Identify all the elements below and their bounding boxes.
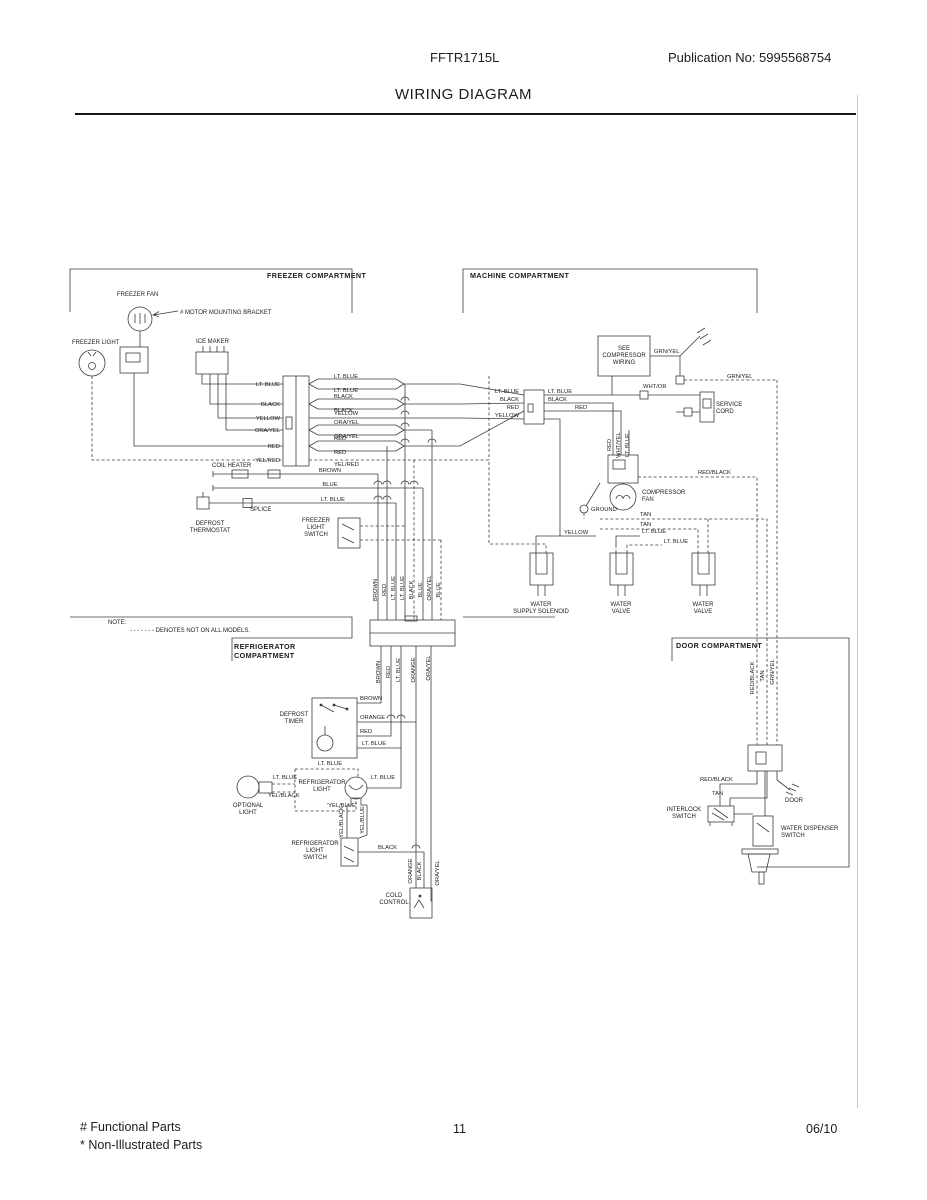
freezer-light-switch-symbol [338, 518, 441, 548]
coil-heater-circuit [197, 470, 423, 509]
door-ground-symbol [777, 771, 799, 795]
wire-label-orange: ORANGE [360, 715, 385, 721]
footer-date: 06/10 [806, 1122, 837, 1136]
wire-label-lt-blue: LT. BLUE [400, 576, 406, 600]
wire-label-red: RED [575, 405, 587, 411]
wire-label-lt-blue: LT. BLUE [664, 539, 688, 545]
fan-motor-box [120, 347, 148, 373]
wire-label-lt-blue: LT. BLUE [362, 741, 386, 747]
freezer-light-switch-label: LIGHT [307, 525, 325, 531]
freezer-light-switch-label: SWITCH [304, 532, 328, 538]
wire-label-black: BLACK [409, 580, 415, 599]
wire-label-red: RED [382, 584, 388, 596]
refrigerator-light-label: LIGHT [313, 787, 331, 793]
wire-label-tan: TAN [640, 512, 651, 518]
wire-label-black: BLACK [378, 845, 397, 851]
wire-label-brown: BROWN [319, 468, 341, 474]
interlock-switch-label: INTERLOCK [667, 807, 701, 813]
interlock-switch-symbol [708, 806, 734, 826]
section-dividers [70, 617, 849, 867]
wire-label-red: RED [507, 405, 519, 411]
wire-label-black: BLACK [500, 397, 519, 403]
wire-label-brown: BROWN [373, 579, 379, 601]
chassis-ground-symbol [650, 328, 711, 384]
wire-label-red-black: RED/BLACK [698, 470, 731, 476]
wire-label-black: BLACK [261, 402, 280, 408]
optional-light-label: LIGHT [239, 810, 257, 816]
water-valve-1-label: WATER [611, 602, 633, 608]
defrost-timer-box [312, 698, 357, 758]
water-valve-2-label: WATER [693, 602, 715, 608]
document-page: FFTR1715L Publication No: 5995568754 WIR… [0, 0, 927, 1200]
wire-label-black: BLACK [417, 861, 423, 880]
service-cord-label: CORD [716, 409, 734, 415]
optional-light-label: OPTIONAL [233, 803, 264, 809]
wire-label-ora-yel: ORA/YEL [435, 860, 441, 886]
wire-label-black: BLACK [548, 397, 567, 403]
footer-page-number: 11 [453, 1122, 466, 1136]
ice-maker-label: ICE MAKER [196, 339, 230, 345]
wire-label-ora-yel: ORA/YEL [426, 655, 432, 681]
wire-label-yellow: YELLOW [564, 530, 589, 536]
wire-label-blue: BLUE [418, 582, 424, 597]
wire-label-red-black: RED/BLACK [700, 777, 733, 783]
wire-label-brown: BROWN [360, 696, 382, 702]
door-compartment-label: DOOR COMPARTMENT [676, 641, 762, 650]
wire-label-ora-yel: ORA/YEL [255, 428, 281, 434]
freezer-light-symbol [79, 350, 105, 376]
wire-label-yellow: YELLOW [334, 411, 359, 417]
interlock-switch-label: SWITCH [672, 814, 696, 820]
wire-label-wht-or: WHT/OR [643, 384, 667, 390]
ice-maker-box [196, 346, 228, 374]
machine-compartment-section [463, 269, 777, 745]
water-supply-solenoid-plug [530, 553, 553, 596]
freezer-compartment-section [70, 269, 546, 620]
wire-label-lt-blue: LT. BLUE [256, 382, 280, 388]
wire-label-orange: ORANGE [408, 858, 414, 883]
wire-label-grn-yel: GRN/YEL [770, 659, 776, 685]
refrigerator-light-symbol [345, 777, 367, 799]
wire-label-lt-blue: LT. BLUE [642, 529, 666, 535]
wire-label-lt-blue: LT. BLUE [548, 389, 572, 395]
service-cord-symbol [640, 391, 714, 422]
refrigerator-light-switch-label: REFRIGERATOR [291, 841, 339, 847]
note-label-label: NOTE: [108, 620, 127, 626]
cold-control-box [410, 888, 432, 918]
connector-block-1 [283, 376, 309, 466]
service-cord-label: SERVICE [716, 402, 742, 408]
wire-label-tan: TAN [760, 670, 766, 681]
wire-label-yellow: YELLOW [495, 413, 520, 419]
freezer-fan-symbol [128, 307, 178, 347]
wire-label-red: RED [607, 439, 613, 451]
wire-label-lt-blue: LT. BLUE [625, 433, 631, 457]
water-valve-2-label: VALVE [694, 609, 712, 615]
connector-block-2 [524, 390, 544, 424]
connector-block-4 [748, 745, 782, 771]
wire-label-lt-blue: LT. BLUE [371, 775, 395, 781]
water-dispenser-switch-label: WATER DISPENSER [781, 826, 839, 832]
refrigerator-compartment-label: REFRIGERATOR [234, 642, 296, 651]
wire-label-ora-yel: ORA/YEL [427, 575, 433, 601]
wire-label-red: RED [334, 436, 346, 442]
refrigerator-compartment-label: COMPARTMENT [234, 651, 295, 660]
footer-non-illustrated-parts: * Non-Illustrated Parts [80, 1138, 202, 1152]
component-label-layer: FREEZER COMPARTMENTMACHINE COMPARTMENTRE… [72, 271, 839, 906]
compressor-fan-label: FAN [642, 497, 654, 503]
water-dispenser-switch-symbol [734, 814, 778, 884]
wiring-diagram: LT. BLUEBLACKYELLOWORA/YELREDYEL/REDLT. … [0, 0, 927, 1200]
defrost-timer-label: TIMER [285, 719, 304, 725]
defrost-thermostat-symbol [197, 497, 209, 509]
door-ground-label: DOOR [785, 798, 804, 804]
door-compartment-section [708, 745, 799, 884]
defrost-thermostat-label: THERMOSTAT [190, 528, 231, 534]
freezer-fan-label: FREEZER FAN [117, 292, 158, 298]
refrigerator-light-switch-symbol [341, 838, 358, 866]
water-supply-solenoid-label: WATER [531, 602, 553, 608]
refrigerator-light-switch-label: LIGHT [306, 848, 324, 854]
compressor-fan-label: COMPRESSOR [642, 490, 686, 496]
wire-label-yellow: YELLOW [256, 416, 281, 422]
wire-label-grn-yel: GRN/YEL [727, 374, 753, 380]
wire-label-yel-black: YEL/BLACK [268, 793, 300, 799]
wire-label-tan: TAN [712, 791, 723, 797]
compressor-relay-box [608, 455, 638, 483]
compressor-wiring-box-label: SEE [618, 346, 630, 352]
water-valve-1-plug [610, 553, 633, 596]
compressor-wiring-box-label: COMPRESSOR [602, 353, 646, 359]
wire-label-red: RED [386, 666, 392, 678]
refrigerator-light-switch-label: SWITCH [303, 855, 327, 861]
wire-label-ground: GROUND [591, 507, 617, 513]
compressor-fan-symbol [610, 483, 636, 510]
freezer-compartment-label: FREEZER COMPARTMENT [267, 271, 367, 280]
defrost-timer-label: DEFROST [280, 712, 309, 718]
refrigerator-crossovers [387, 715, 420, 849]
wire-label-lt-blue: LT. BLUE [334, 374, 358, 380]
motor-mounting-bracket-label: # MOTOR MOUNTING BRACKET [180, 310, 272, 316]
wire-label-lt-blue: LT. BLUE [396, 658, 402, 682]
wire-label-brown: BROWN [376, 661, 382, 683]
water-supply-solenoid-label: SUPPLY SOLENOID [513, 609, 569, 615]
wire-label-red: RED [334, 450, 346, 456]
wire-label-orange: ORANGE [411, 657, 417, 682]
water-valve-2-plug [692, 553, 715, 596]
wire-label-blue: BLUE [322, 482, 337, 488]
wire-label-blue: BLUE [436, 582, 442, 597]
footer-functional-parts: # Functional Parts [80, 1120, 181, 1134]
freezer-light-label: FREEZER LIGHT [72, 340, 120, 346]
wire-label-yel-blue: YEL/BLUE [360, 806, 366, 834]
wire-label-wht-yel: WHT/YEL [616, 431, 622, 458]
splice-label: SPLICE [250, 507, 271, 513]
machine-compartment-label: MACHINE COMPARTMENT [470, 271, 570, 280]
black-wire-to-cold-control [358, 852, 424, 888]
wire-label-lt-blue: LT. BLUE [321, 497, 345, 503]
water-valve-1-label: VALVE [612, 609, 630, 615]
wire-label-ora-yel: ORA/YEL [334, 420, 360, 426]
refrigerator-light-label: REFRIGERATOR [298, 780, 346, 786]
wire-label-lt-blue: LT. BLUE [495, 389, 519, 395]
wire-label-lt-blue: LT. BLUE [273, 775, 297, 781]
compressor-wiring-box-label: WIRING [613, 360, 636, 366]
water-dispenser-switch-label: SWITCH [781, 833, 805, 839]
connector-block-3 [370, 616, 455, 646]
defrost-thermostat-label: DEFROST [196, 521, 225, 527]
cold-control-label: COLD [386, 893, 403, 899]
wire-label-tan: TAN [640, 522, 651, 528]
wire-label-lt-blue: LT. BLUE [318, 761, 342, 767]
wire-label-black: BLACK [334, 394, 353, 400]
wire-label-red-black: RED/BLACK [750, 661, 756, 694]
wire-label-red: RED [360, 729, 372, 735]
valve-dashed-wires [616, 545, 662, 553]
optional-light-symbol [237, 776, 272, 798]
note-text-label: - - - - - - - DENOTES NOT ON ALL MODELS. [130, 628, 250, 634]
wire-label-lt-blue: LT. BLUE [391, 576, 397, 600]
coil-heater-label: COIL HEATER [212, 463, 252, 469]
cold-control-label: CONTROL [379, 900, 409, 906]
wire-label-red: RED [268, 444, 280, 450]
freezer-light-switch-label: FREEZER [302, 518, 331, 524]
wire-label-yel-black: YEL/BLACK [339, 806, 345, 838]
wire-label-grn-yel: GRN/YEL [654, 349, 680, 355]
valve-lt-blue-wire [616, 536, 640, 545]
wire-label-yel-red: YEL/RED [255, 458, 280, 464]
